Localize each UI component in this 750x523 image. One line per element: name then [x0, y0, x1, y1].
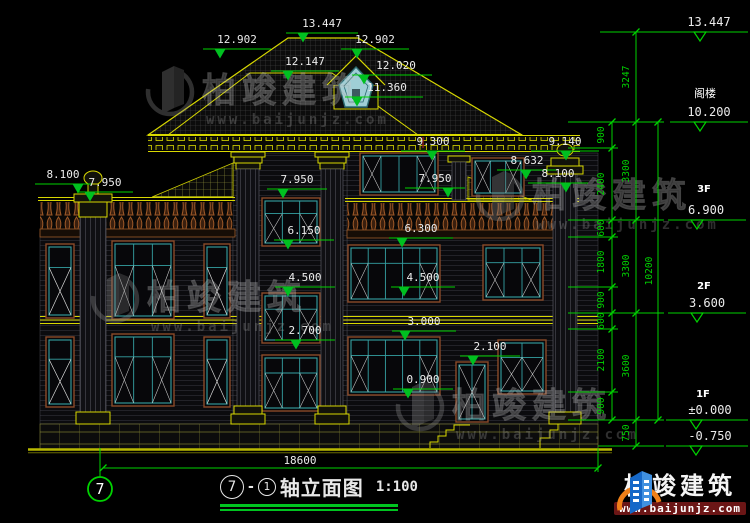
floor-3f-label: 3F: [697, 184, 711, 195]
svg-text:3247: 3247: [621, 66, 632, 89]
attic-label: 阁楼: [694, 86, 716, 100]
logo-building-right: [642, 471, 652, 508]
level-ground: -0.750: [688, 429, 731, 455]
svg-text:12.020: 12.020: [376, 59, 416, 72]
svg-text:900: 900: [596, 397, 607, 414]
overall-dimension: 18600: [283, 454, 316, 467]
svg-text:6.300: 6.300: [404, 222, 437, 235]
window: [46, 244, 74, 318]
svg-text:6.900: 6.900: [688, 203, 724, 217]
dim-urn-left: 8.100: [35, 168, 91, 194]
svg-text:12.902: 12.902: [217, 33, 257, 46]
title-axis-bubble-7: 7: [220, 475, 244, 499]
svg-text:12.147: 12.147: [285, 55, 325, 68]
svg-text:9.140: 9.140: [548, 135, 581, 148]
level-ridge: 13.447: [687, 15, 730, 41]
level-1f: ±0.000: [688, 403, 731, 429]
svg-text:600: 600: [596, 312, 607, 329]
svg-text:900: 900: [596, 291, 607, 308]
title-underline-thick: [220, 504, 398, 507]
title-dash: -: [248, 479, 254, 495]
drawing-title-text: 轴立面图: [280, 472, 364, 501]
level-attic: 10.200: [687, 105, 730, 131]
window: [262, 355, 320, 411]
cad-canvas: 柏竣建筑 www.baijunjz.com: [0, 0, 750, 523]
svg-text:750: 750: [621, 424, 632, 441]
svg-text:7.950: 7.950: [418, 172, 451, 185]
svg-text:7.950: 7.950: [88, 176, 121, 189]
title-axis-bubble-1: 1: [258, 478, 276, 496]
window: [112, 334, 174, 406]
svg-text:8.632: 8.632: [510, 154, 543, 167]
drawing-title-block: 7 - 1 轴立面图 1:100: [220, 472, 418, 511]
svg-text:10200: 10200: [644, 256, 655, 285]
svg-text:13.447: 13.447: [302, 17, 342, 30]
svg-text:6.150: 6.150: [287, 224, 320, 237]
left-skylight: [152, 163, 233, 197]
svg-text:11.360: 11.360: [367, 81, 407, 94]
level-2f: 3.600: [689, 296, 725, 322]
svg-text:12.902: 12.902: [355, 33, 395, 46]
logo-building-left: [630, 471, 642, 514]
svg-text:3.000: 3.000: [407, 315, 440, 328]
floor-2f-label: 2F: [697, 281, 711, 292]
window: [204, 337, 230, 407]
svg-text:2400: 2400: [596, 172, 607, 195]
svg-text:7.950: 7.950: [280, 173, 313, 186]
left-parapet-balustrade: [38, 198, 235, 238]
svg-text:10.200: 10.200: [687, 105, 730, 119]
svg-text:±0.000: ±0.000: [688, 403, 731, 417]
level-markers: 13.447 阁楼 10.200 3F 6.900 2F 3.600 1F ±0…: [666, 15, 748, 455]
drawing-scale: 1:100: [376, 479, 418, 495]
svg-text:-0.750: -0.750: [688, 429, 731, 443]
window: [46, 337, 74, 407]
svg-text:8.100: 8.100: [541, 167, 574, 180]
cornice-dentil-band: [148, 136, 580, 152]
svg-text:4.500: 4.500: [406, 271, 439, 284]
svg-text:0.900: 0.900: [406, 373, 439, 386]
svg-text:2100: 2100: [596, 348, 607, 371]
svg-text:8.100: 8.100: [46, 168, 79, 181]
svg-text:13.447: 13.447: [687, 15, 730, 29]
elevation-drawing: 柏竣建筑 www.baijunjz.com: [0, 0, 750, 523]
svg-text:3300: 3300: [621, 159, 632, 182]
svg-text:3600: 3600: [621, 354, 632, 377]
svg-text:2.700: 2.700: [288, 324, 321, 337]
brand-logo: 柏竣建筑 www.baijunjz.com: [614, 466, 746, 515]
svg-text:9.300: 9.300: [416, 135, 449, 148]
svg-text:2.100: 2.100: [473, 340, 506, 353]
brand-logo-icon: [614, 466, 662, 518]
svg-text:3300: 3300: [621, 254, 632, 277]
floor-1f-label: 1F: [696, 389, 710, 400]
title-underline-thin: [220, 509, 398, 511]
chain-ticks: [609, 29, 662, 450]
window: [262, 198, 320, 246]
svg-text:4.500: 4.500: [288, 271, 321, 284]
svg-text:1800: 1800: [596, 250, 607, 273]
axis-number: 7: [95, 480, 104, 498]
svg-text:600: 600: [596, 219, 607, 236]
window: [483, 245, 543, 300]
svg-text:900: 900: [596, 126, 607, 143]
dim-hip-left: 12.902: [203, 33, 271, 59]
svg-text:3.600: 3.600: [689, 296, 725, 310]
